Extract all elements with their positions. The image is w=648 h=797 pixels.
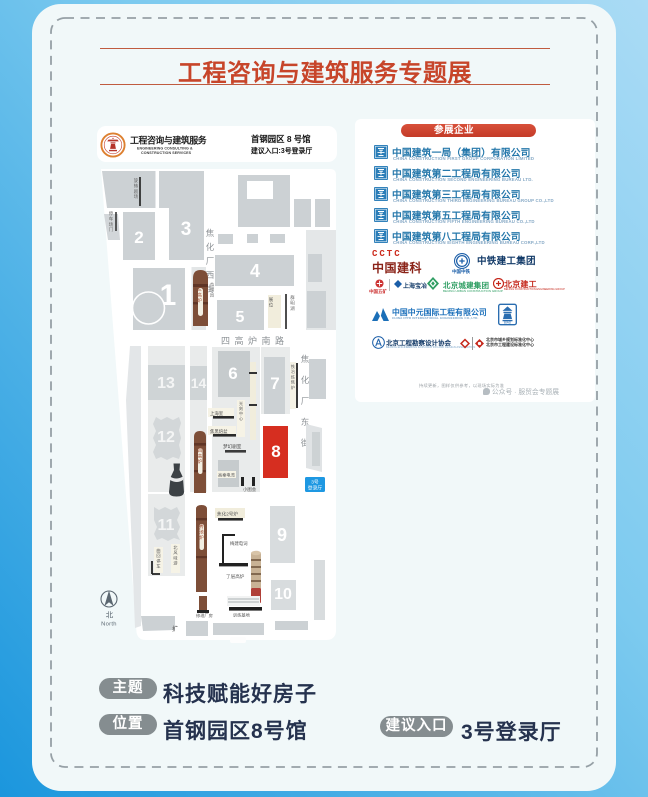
svg-text:了层高炉: 了层高炉 [226, 573, 245, 580]
svg-text:四高炉南路: 四高炉南路 [221, 335, 289, 346]
svg-text:旋转剧场: 旋转剧场 [134, 177, 139, 200]
svg-text:11: 11 [158, 517, 175, 534]
svg-text:5: 5 [236, 309, 245, 326]
svg-text:三高炉: 三高炉 [197, 287, 202, 304]
svg-text:6: 6 [228, 364, 237, 383]
svg-text:梦幻剧室: 梦幻剧室 [223, 443, 242, 450]
svg-text:8: 8 [271, 442, 280, 461]
svg-text:停车场门: 停车场门 [109, 210, 114, 233]
svg-text:14: 14 [191, 375, 207, 391]
svg-text:建议入口:3号登录厅: 建议入口:3号登录厅 [251, 146, 312, 155]
svg-text:训练基地: 训练基地 [233, 612, 251, 619]
svg-text:展位: 展位 [269, 297, 274, 307]
svg-text:3: 3 [181, 219, 192, 240]
svg-text:工程咨询与建筑服务: 工程咨询与建筑服务 [130, 135, 207, 146]
svg-text:小图会: 小图会 [243, 486, 257, 493]
svg-text:修理厂房: 修理厂房 [196, 612, 213, 619]
svg-text:曲回停车: 曲回停车 [156, 547, 160, 570]
svg-text:扩: 扩 [172, 625, 178, 633]
svg-text:焦黑焙盆: 焦黑焙盆 [210, 428, 228, 435]
svg-text:3号: 3号 [311, 480, 319, 486]
svg-text:10: 10 [274, 586, 292, 603]
svg-text:光刻中心: 光刻中心 [239, 400, 243, 421]
svg-text:North: North [101, 622, 117, 628]
svg-text:群明湖: 群明湖 [290, 294, 295, 312]
svg-text:秀池炉: 秀池炉 [199, 523, 204, 541]
svg-text:登录厅: 登录厅 [308, 485, 323, 492]
svg-text:ENGINEERING CONSULTING &: ENGINEERING CONSULTING & [137, 146, 193, 150]
svg-text:4: 4 [250, 261, 260, 281]
svg-text:BIAD: BIAD [504, 321, 512, 325]
svg-text:首钢园: 首钢园 [210, 281, 214, 298]
svg-text:梅建电词: 梅建电词 [230, 540, 248, 547]
svg-text:CONSTRUCTION SERVICES: CONSTRUCTION SERVICES [141, 151, 192, 155]
svg-text:7: 7 [270, 374, 279, 393]
svg-text:高秦电湾: 高秦电湾 [218, 472, 235, 479]
svg-text:焦化2号炉: 焦化2号炉 [217, 511, 238, 518]
svg-text:上海室: 上海室 [210, 410, 224, 417]
svg-text:2: 2 [134, 228, 143, 247]
svg-text:首钢园区 8 号馆: 首钢园区 8 号馆 [251, 134, 311, 144]
svg-text:9: 9 [277, 525, 287, 545]
svg-text:北: 北 [106, 611, 114, 620]
svg-text:四高炉: 四高炉 [198, 448, 203, 465]
svg-text:12: 12 [157, 429, 175, 446]
svg-text:13: 13 [157, 375, 175, 392]
